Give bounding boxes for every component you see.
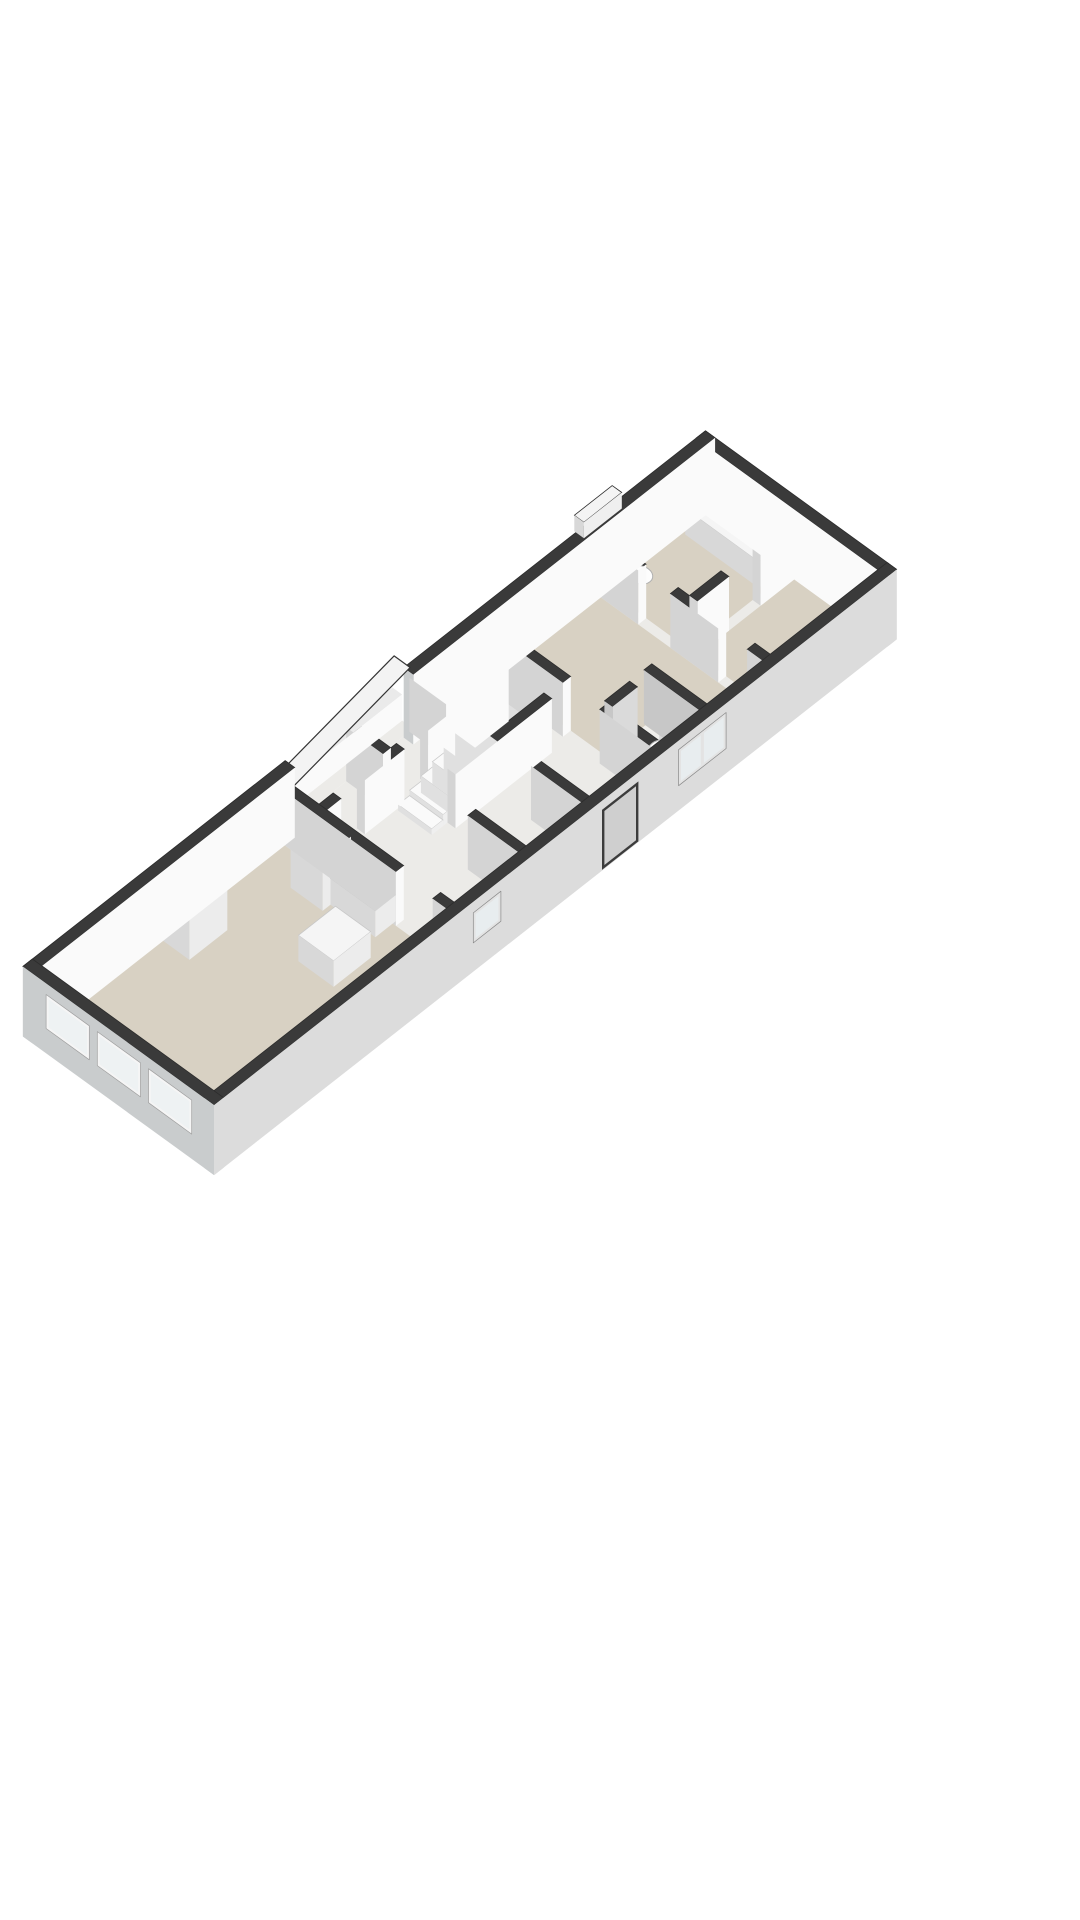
- wall-c-div-2-front: [718, 622, 726, 682]
- wall-divider-a-b-1-front: [396, 866, 404, 926]
- wall-stair-back-2-left: [357, 774, 365, 834]
- floorplan-viewport: [0, 0, 1080, 1920]
- window-mullion: [701, 733, 704, 766]
- wall-stair-front-left: [448, 769, 456, 829]
- wall-exterior-west-front: [214, 1098, 224, 1175]
- wall-c-div-1-front: [638, 564, 646, 624]
- wall-bath-front-2-left: [753, 546, 761, 606]
- wall-divider-b-c-1-front: [563, 677, 571, 737]
- floorplan-3d-render: [0, 0, 1080, 1920]
